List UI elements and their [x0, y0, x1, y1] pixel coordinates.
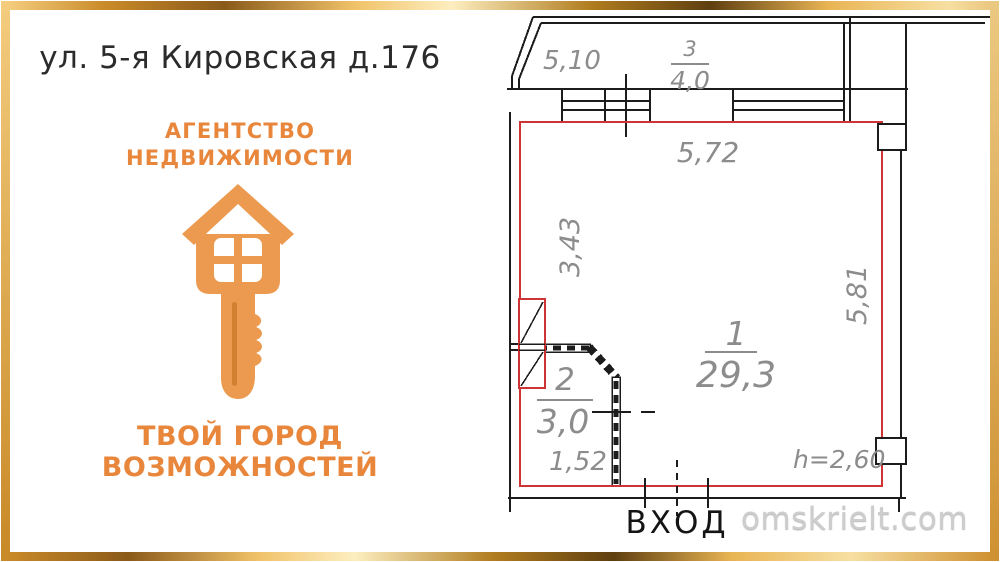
- room-2-area: 3,0: [533, 402, 593, 441]
- balcony-walls: [507, 17, 990, 150]
- room-2-number: 2: [536, 362, 594, 398]
- entrance-label: ВХОД: [597, 505, 757, 541]
- dim-bottom-left: 1,52: [549, 447, 607, 477]
- real-estate-flyer: ул. 5-я Кировская д.176 АГЕНТСТВО НЕДВИЖ…: [0, 0, 1000, 562]
- dim-balcony-width: 5,10: [543, 46, 601, 76]
- dim-right: 5,81: [828, 265, 888, 325]
- dim-left: 3,43: [541, 217, 601, 277]
- room-3-area: 4,0: [665, 66, 715, 95]
- dim-top: 5,72: [658, 136, 758, 169]
- pilaster: [878, 124, 906, 150]
- room-1-number: 1: [686, 314, 786, 353]
- dim-ceiling-height: h=2,60: [793, 445, 885, 474]
- room-1-area: 29,3: [686, 355, 786, 396]
- room-3-number: 3: [665, 37, 715, 61]
- watermark: omskrielt.com: [741, 501, 968, 537]
